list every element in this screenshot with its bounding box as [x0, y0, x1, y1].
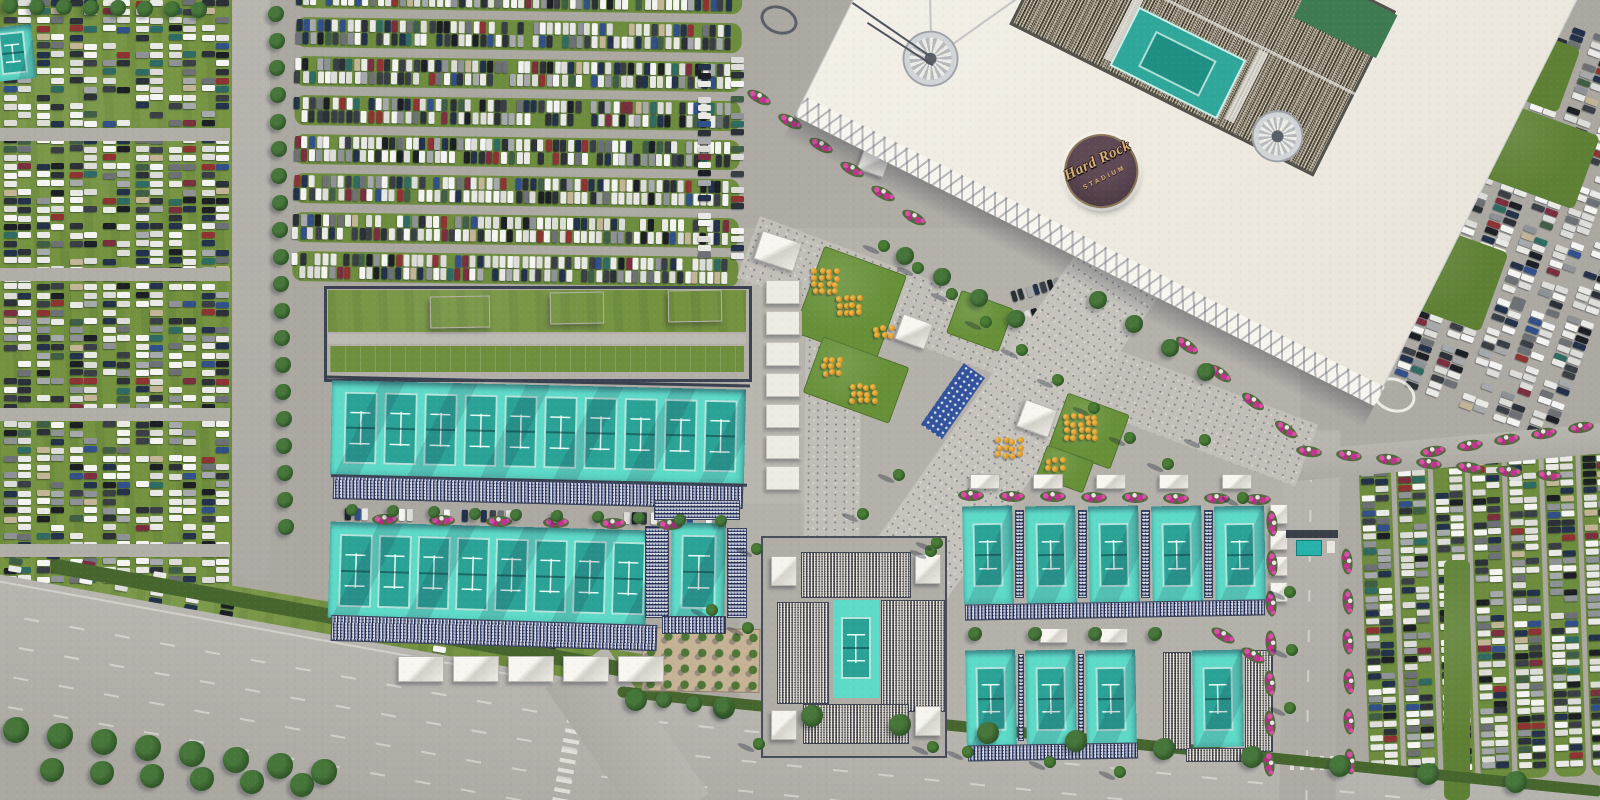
car: [658, 0, 664, 10]
tree: [83, 0, 99, 16]
car: [1369, 704, 1382, 710]
court-walk-stand: [1018, 654, 1024, 741]
car: [1017, 288, 1025, 300]
car: [1376, 518, 1389, 524]
car: [1406, 711, 1419, 717]
car: [1406, 695, 1419, 701]
car: [169, 223, 182, 229]
car: [539, 100, 545, 112]
car: [310, 71, 316, 83]
car: [183, 361, 196, 367]
car: [404, 255, 410, 267]
car: [1416, 593, 1429, 599]
car: [216, 17, 229, 23]
car: [1514, 621, 1527, 627]
car: [698, 213, 711, 219]
car: [488, 0, 494, 8]
car: [589, 257, 595, 269]
car: [677, 258, 683, 270]
car: [612, 140, 618, 152]
car: [619, 258, 625, 270]
car: [150, 326, 163, 332]
car: [70, 43, 83, 49]
car: [442, 138, 448, 150]
car: [345, 137, 351, 149]
car: [316, 97, 322, 109]
car: [183, 164, 196, 170]
car: [447, 268, 453, 280]
car: [1555, 744, 1568, 750]
car: [366, 267, 372, 279]
hard-rock-logo: Hard Rock STADIUM: [1052, 121, 1151, 220]
car: [1560, 487, 1573, 493]
car: [1552, 635, 1565, 641]
car: [710, 25, 716, 37]
car: [216, 250, 229, 256]
car: [1515, 653, 1528, 659]
car: [575, 140, 581, 152]
grandstand-court: [761, 536, 947, 758]
car: [216, 155, 229, 161]
car: [4, 481, 17, 487]
car: [443, 60, 449, 72]
car: [1450, 491, 1463, 497]
car: [672, 76, 678, 88]
car: [1517, 691, 1530, 697]
car: [51, 283, 64, 289]
car: [1513, 590, 1526, 596]
car: [1569, 729, 1582, 735]
car: [1589, 634, 1600, 640]
car: [1363, 541, 1376, 547]
car: [1493, 676, 1506, 682]
car: [216, 559, 229, 565]
car: [506, 269, 512, 281]
car: [1488, 521, 1501, 527]
car: [1363, 525, 1376, 531]
car: [136, 481, 149, 487]
car: [655, 258, 661, 270]
flower-bed: [486, 516, 512, 527]
car: [18, 146, 31, 152]
car: [396, 254, 402, 266]
car: [4, 300, 17, 306]
car: [562, 23, 568, 35]
car: [537, 217, 543, 229]
car: [1450, 499, 1463, 505]
grandstand-north-stand: [801, 552, 911, 598]
car: [1488, 528, 1501, 534]
car: [615, 0, 621, 10]
car: [679, 193, 685, 205]
car: [103, 499, 116, 505]
car: [202, 343, 215, 349]
gate-canopy: [1296, 540, 1322, 556]
car: [333, 33, 339, 45]
car: [665, 141, 671, 153]
car: [469, 268, 475, 280]
car: [51, 319, 64, 325]
car: [657, 37, 663, 49]
car: [1370, 736, 1383, 742]
car: [18, 507, 31, 513]
car: [51, 241, 64, 247]
car: [292, 253, 298, 265]
car: [1405, 688, 1418, 694]
car: [344, 254, 350, 266]
car: [1398, 485, 1411, 491]
car: [353, 137, 359, 149]
car: [496, 35, 502, 47]
car: [537, 139, 543, 151]
car: [150, 198, 163, 204]
car: [84, 87, 97, 93]
car: [1519, 753, 1532, 759]
car: [37, 508, 50, 514]
car: [1473, 498, 1486, 504]
car: [37, 378, 50, 384]
car: [605, 101, 611, 113]
car: [531, 178, 537, 190]
car: [1531, 715, 1544, 721]
car: [183, 335, 196, 341]
car: [70, 447, 83, 453]
car: [574, 231, 580, 243]
car: [1368, 689, 1381, 695]
car: [1586, 556, 1599, 562]
car: [1566, 643, 1579, 649]
car: [628, 63, 634, 75]
car: [84, 395, 97, 401]
car: [570, 36, 576, 48]
car: [591, 101, 597, 113]
car: [695, 38, 701, 50]
car: [1417, 610, 1430, 616]
car: [1570, 760, 1583, 766]
umbrella: [1045, 465, 1051, 471]
car: [1586, 548, 1599, 554]
car: [346, 150, 352, 162]
car: [681, 24, 687, 36]
car: [309, 188, 315, 200]
car: [84, 111, 97, 117]
car: [421, 34, 427, 46]
car: [4, 421, 17, 427]
car: [407, 0, 413, 7]
car: [368, 150, 374, 162]
car: [117, 465, 130, 471]
car: [51, 42, 64, 48]
car: [339, 137, 345, 149]
car: [662, 258, 668, 270]
tennis-court: [383, 393, 418, 466]
tent: [1159, 474, 1189, 489]
car: [37, 361, 50, 367]
car: [392, 59, 398, 71]
car: [405, 99, 411, 111]
car: [37, 180, 50, 186]
car: [1381, 649, 1394, 655]
car: [354, 33, 360, 45]
car: [671, 141, 677, 153]
car: [620, 115, 626, 127]
car: [37, 34, 50, 40]
car: [202, 457, 215, 463]
car: [316, 149, 322, 161]
tennis-court: [1095, 666, 1126, 731]
car: [650, 63, 656, 75]
car: [84, 491, 97, 497]
hard-rock-logo-inner: Hard Rock STADIUM: [1054, 124, 1148, 218]
car: [103, 301, 116, 307]
car: [406, 60, 412, 72]
car: [626, 258, 632, 270]
palm-tree: [1162, 458, 1174, 470]
car: [169, 490, 182, 496]
car: [150, 26, 163, 32]
car: [4, 387, 17, 393]
car: [338, 189, 344, 201]
car: [1592, 728, 1600, 734]
car: [70, 233, 83, 239]
car: [1481, 740, 1494, 746]
car: [169, 353, 182, 359]
car: [202, 180, 215, 186]
car: [514, 256, 520, 268]
car: [1565, 612, 1578, 618]
car: [331, 176, 337, 188]
car: [84, 232, 97, 238]
tent: [453, 656, 499, 682]
car: [1415, 555, 1428, 561]
car: [37, 455, 50, 461]
car: [37, 95, 50, 101]
car: [626, 180, 632, 192]
car: [698, 97, 711, 103]
car: [117, 17, 130, 23]
car: [18, 422, 31, 428]
car: [562, 0, 568, 9]
car: [1416, 602, 1429, 608]
court-one-stand-east: [727, 528, 747, 618]
car: [330, 149, 336, 161]
car: [1516, 683, 1529, 689]
tree: [271, 141, 287, 157]
car: [517, 152, 523, 164]
car: [169, 567, 182, 573]
car: [18, 534, 31, 540]
car: [459, 21, 465, 33]
umbrella: [818, 282, 824, 288]
car: [1490, 591, 1503, 597]
car: [597, 153, 603, 165]
car: [358, 254, 364, 266]
car: [397, 150, 403, 162]
car: [507, 230, 513, 242]
car: [413, 73, 419, 85]
car: [523, 230, 529, 242]
car: [698, 236, 711, 242]
tree: [469, 508, 481, 520]
car: [419, 216, 425, 228]
car: [671, 180, 677, 192]
car: [1370, 744, 1383, 750]
car: [375, 98, 381, 110]
car: [419, 151, 425, 163]
car: [150, 94, 163, 100]
car: [117, 87, 130, 93]
car: [117, 224, 130, 230]
car: [70, 345, 83, 351]
tree: [140, 764, 164, 788]
car: [1362, 503, 1375, 509]
umbrella: [1071, 429, 1077, 435]
car: [502, 139, 508, 151]
car: [1496, 754, 1509, 760]
court-walk-stand: [1078, 654, 1084, 741]
car: [464, 177, 470, 189]
vendor-booth: [766, 280, 802, 304]
car: [382, 137, 388, 149]
car: [665, 24, 671, 36]
car: [296, 0, 302, 5]
car: [70, 464, 83, 470]
car: [1593, 760, 1600, 766]
tree: [269, 33, 285, 49]
court-walk-stand: [1078, 510, 1087, 598]
car: [103, 421, 116, 427]
car: [502, 22, 508, 34]
car: [1512, 551, 1525, 557]
car: [466, 34, 472, 46]
car: [406, 34, 412, 46]
car: [1509, 480, 1522, 486]
car: [544, 269, 550, 281]
car: [169, 507, 182, 513]
car: [1531, 707, 1544, 713]
car: [377, 20, 383, 32]
car: [4, 395, 17, 401]
car: [642, 102, 648, 114]
car: [678, 180, 684, 192]
car: [547, 75, 553, 87]
car: [4, 198, 17, 204]
car: [353, 189, 359, 201]
car: [1364, 564, 1377, 570]
car: [4, 472, 17, 478]
car: [150, 516, 163, 522]
car: [51, 439, 64, 445]
car: [1367, 650, 1380, 656]
car: [1490, 576, 1503, 582]
car: [333, 0, 339, 6]
car: [202, 258, 215, 264]
car: [1404, 656, 1417, 662]
car: [70, 223, 83, 229]
car: [183, 103, 196, 109]
tennis-court: [543, 396, 578, 469]
car: [355, 0, 361, 6]
car: [202, 361, 215, 367]
car: [337, 228, 343, 240]
car: [547, 23, 553, 35]
car: [117, 241, 130, 247]
car: [1414, 524, 1427, 530]
umbrella: [849, 310, 855, 316]
car: [1566, 651, 1579, 657]
car: [169, 34, 182, 40]
car: [487, 35, 493, 47]
tennis-court: [377, 535, 412, 609]
car: [103, 68, 116, 74]
palm-tree: [1284, 702, 1296, 714]
car: [84, 258, 97, 264]
car: [216, 188, 229, 194]
car: [651, 24, 657, 36]
car: [561, 62, 567, 74]
car: [391, 72, 397, 84]
car: [37, 370, 50, 376]
car: [216, 481, 229, 487]
court-walk-stand: [1015, 510, 1024, 598]
car: [84, 370, 97, 376]
umbrella: [1070, 422, 1076, 428]
car: [480, 100, 486, 112]
car: [150, 223, 163, 229]
car: [477, 256, 483, 268]
tree: [272, 195, 288, 211]
car: [301, 214, 307, 226]
car: [51, 378, 64, 384]
car: [1366, 619, 1379, 625]
car: [70, 327, 83, 333]
car: [4, 146, 17, 152]
car: [1563, 550, 1576, 556]
car: [390, 150, 396, 162]
car: [412, 112, 418, 124]
car: [216, 292, 229, 298]
car: [360, 111, 366, 123]
car: [183, 318, 196, 324]
car: [4, 241, 17, 247]
car: [390, 137, 396, 149]
car: [4, 491, 17, 497]
car: [1404, 640, 1417, 646]
car: [698, 195, 711, 201]
palm-tree: [706, 604, 718, 616]
car: [296, 19, 302, 31]
car: [1473, 490, 1486, 496]
car: [216, 343, 229, 349]
car: [1482, 756, 1495, 762]
car: [216, 146, 229, 152]
car: [731, 203, 744, 209]
car: [1421, 726, 1434, 732]
car: [1525, 528, 1538, 534]
tree: [277, 492, 293, 508]
car: [1549, 550, 1562, 556]
car: [604, 218, 610, 230]
car: [1554, 706, 1567, 712]
car: [136, 507, 149, 513]
car: [1413, 492, 1426, 498]
car: [1369, 697, 1382, 703]
car: [373, 254, 379, 266]
car: [70, 60, 83, 66]
car: [662, 219, 668, 231]
grass-patch: [1444, 560, 1470, 800]
car: [1532, 738, 1545, 744]
